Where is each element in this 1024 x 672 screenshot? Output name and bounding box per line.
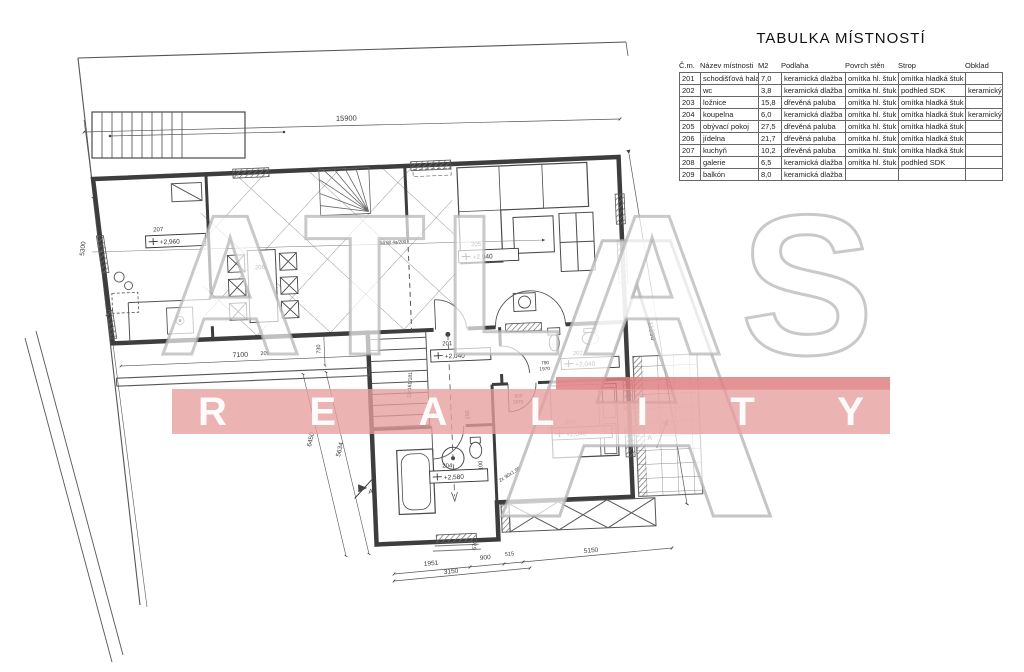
table-cell	[966, 73, 1003, 85]
table-cell: 205	[680, 121, 701, 133]
svg-text:A: A	[368, 489, 373, 496]
rooms-table: 201schodišťová hala7,0keramická dlažbaom…	[679, 72, 1003, 181]
table-cell	[846, 169, 899, 181]
spec-door-bed-w: 800	[514, 393, 523, 399]
table-cell: omítka hladká štuk	[899, 133, 966, 145]
table-cell: keramická dlažba	[782, 73, 846, 85]
table-cell: obývací pokoj	[701, 121, 759, 133]
table-header-cell: Strop	[898, 61, 965, 70]
door-arc-wc	[500, 345, 529, 374]
table-row: 202wc3,8keramická dlažbaomítka hl. štukp…	[680, 85, 1003, 97]
dim-5150: 5150	[584, 547, 599, 555]
table-cell: 8,0	[759, 169, 782, 181]
external-stair	[633, 354, 703, 497]
page: 7100 209 730 150 2100 2x 90x1,90 790 197…	[0, 0, 1024, 672]
table-cell: dřevěná paluba	[782, 121, 846, 133]
dim-900: 900	[480, 554, 492, 562]
table-column-headers: Č.m.Název místnostiM2PodlahaPovrch stěnS…	[679, 61, 1003, 70]
coffee-table	[513, 216, 554, 254]
table-cell	[966, 169, 1003, 181]
table-cell: 209	[680, 169, 701, 181]
svg-text:A: A	[647, 435, 652, 442]
spec-door-wc-w: 790	[541, 360, 550, 366]
table-cell: 21,7	[759, 133, 782, 145]
svg-text:+2,040: +2,040	[575, 361, 596, 369]
bed	[550, 383, 619, 458]
chimney	[171, 183, 202, 202]
table-cell: galerie	[701, 157, 759, 169]
spec-window-bath: 2x 90x1,90	[498, 466, 522, 484]
table-title: TABULKA MÍSTNOSTÍ	[679, 30, 1003, 47]
table-cell: omítka hladká štuk	[899, 73, 966, 85]
table-cell: 6,0	[759, 109, 782, 121]
elev-box-205: +2,940	[458, 248, 518, 263]
table-cell: keramická dlažba	[782, 157, 846, 169]
table-cell: omítka hl. štuk	[846, 85, 899, 97]
balcony-truss	[501, 498, 656, 532]
wc-fixtures	[548, 326, 599, 351]
table-cell: omítka hladká štuk	[899, 109, 966, 121]
table-header-cell: Obklad	[965, 61, 1002, 70]
dim-515: 515	[505, 551, 515, 558]
dim-150: 150	[465, 410, 471, 419]
svg-text:+2,580: +2,580	[444, 474, 465, 482]
table-row: 201schodišťová hala7,0keramická dlažbaom…	[680, 73, 1003, 85]
section-marker-left: A	[354, 480, 374, 499]
table-cell: omítka hladká štuk	[899, 145, 966, 157]
table-cell: keramická dlažba	[782, 169, 846, 181]
table-cell: balkón	[701, 169, 759, 181]
dim-5300: 5300	[79, 241, 88, 256]
dim-7100: 7100	[232, 352, 248, 360]
table-row: 204koupelna6,0keramická dlažbaomítka hl.…	[680, 109, 1003, 121]
table-cell: wc	[701, 85, 759, 97]
room-num-206: 206	[255, 265, 266, 271]
table-cell: omítka hl. štuk	[846, 145, 899, 157]
svg-text:+2,040: +2,040	[566, 431, 587, 439]
table-cell: 3,8	[759, 85, 782, 97]
table-cell: podhled SDK	[899, 85, 966, 97]
table-cell: schodišťová hala	[701, 73, 759, 85]
table-cell: 27,5	[759, 121, 782, 133]
table-header-cell: Č.m.	[679, 61, 700, 70]
table-header-cell: Povrch stěn	[845, 61, 898, 70]
spec-door-wc-h: 1970	[539, 366, 550, 372]
room-num-203: 203	[566, 419, 577, 425]
table-cell: keramická dlažba	[782, 85, 846, 97]
table-cell: keramický	[966, 109, 1003, 121]
dim-5634: 5634	[335, 441, 345, 457]
room-num-201: 201	[442, 341, 453, 347]
table-cell: 206	[680, 133, 701, 145]
kitchen-counter	[111, 268, 213, 343]
dim-11250: 11250	[646, 321, 656, 341]
elev-box-207: +2,960	[145, 233, 205, 248]
bath-toilet	[469, 437, 482, 458]
table-cell: 202	[680, 85, 701, 97]
table-cell: ložnice	[701, 97, 759, 109]
dim-1951: 1951	[424, 560, 439, 568]
svg-text:+2,040: +2,040	[445, 353, 466, 361]
table-cell: omítka hl. štuk	[846, 73, 899, 85]
table-header-cell: M2	[758, 61, 781, 70]
dim-3150: 3150	[444, 568, 459, 576]
table-cell	[966, 145, 1003, 157]
door-arc-bath	[432, 426, 465, 459]
table-cell: 6,5	[759, 157, 782, 169]
armchair	[559, 212, 595, 271]
spec-door-bed-h: 1970	[513, 399, 524, 405]
table-row: 207kuchyň10,2dřevěná palubaomítka hl. št…	[680, 145, 1003, 157]
interior-stair	[370, 332, 430, 429]
room-num-204: 204	[442, 463, 453, 469]
dim-670: 670	[472, 540, 479, 550]
table-cell: podhled SDK	[899, 157, 966, 169]
table-cell	[966, 121, 1003, 133]
table-cell: 203	[680, 97, 701, 109]
table-row: 208galerie6,5keramická dlažbaomítka hl. …	[680, 157, 1003, 169]
dim-15900: 15900	[336, 113, 357, 123]
table-cell: dřevěná paluba	[782, 145, 846, 157]
spec-stair: 11x161/181	[406, 372, 414, 398]
table-cell: omítka hl. štuk	[846, 109, 899, 121]
svg-text:+2,940: +2,940	[473, 253, 494, 261]
table-cell	[966, 97, 1003, 109]
label-209: 209	[260, 351, 269, 357]
table-cell: 207	[680, 145, 701, 157]
table-cell: dřevěná paluba	[782, 97, 846, 109]
table-cell: 201	[680, 73, 701, 85]
table-cell: omítka hl. štuk	[846, 97, 899, 109]
elev-box-202: +2,040	[561, 356, 619, 369]
elev-box-204: +2,580	[430, 469, 488, 483]
building: 7100 209 730 150 2100 2x 90x1,90 790 197…	[93, 150, 705, 565]
table-cell: 7,0	[759, 73, 782, 85]
table-header-cell: Název místnosti	[700, 61, 758, 70]
table-cell: kuchyň	[701, 145, 759, 157]
table-cell	[966, 157, 1003, 169]
elev-box-201: +2,040	[430, 348, 490, 363]
table-cell: 10,2	[759, 145, 782, 157]
room-num-207: 207	[153, 227, 164, 233]
table-cell	[966, 133, 1003, 145]
dim-line-730	[324, 336, 325, 366]
table-row: 209balkón8,0keramická dlažba	[680, 169, 1003, 181]
table-cell: koupelna	[701, 109, 759, 121]
site-boundary	[25, 42, 628, 662]
room-table-block: TABULKA MÍSTNOSTÍ Č.m.Název místnostiM2P…	[679, 30, 1003, 181]
table-header-cell: Podlaha	[781, 61, 845, 70]
table-cell: omítka hl. štuk	[846, 157, 899, 169]
terrace-strip	[116, 368, 369, 387]
table-row: 206jídelna21,7dřevěná palubaomítka hl. š…	[680, 133, 1003, 145]
table-cell: 208	[680, 157, 701, 169]
table-cell: omítka hladká štuk	[899, 121, 966, 133]
table-cell: 204	[680, 109, 701, 121]
dim-730: 730	[316, 344, 322, 353]
room-num-205: 205	[471, 242, 482, 248]
table-cell: omítka hladká štuk	[899, 97, 966, 109]
room-num-202: 202	[573, 351, 584, 357]
table-cell: keramická dlažba	[782, 109, 846, 121]
dim-6450: 6450	[306, 431, 316, 447]
dining-table	[247, 249, 278, 322]
table-row: 203ložnice15,8dřevěná palubaomítka hl. š…	[680, 97, 1003, 109]
bathtub	[397, 449, 436, 514]
table-cell	[899, 169, 966, 181]
table-cell: dřevěná paluba	[782, 133, 846, 145]
table-cell: omítka hl. štuk	[846, 133, 899, 145]
table-row: 205obývací pokoj27,5dřevěná palubaomítka…	[680, 121, 1003, 133]
stove	[513, 293, 536, 312]
table-cell: keramický	[966, 85, 1003, 97]
table-cell: jídelna	[701, 133, 759, 145]
elev-box-203: +2,040	[552, 426, 612, 441]
svg-text:+2,960: +2,960	[160, 238, 181, 246]
table-cell: omítka hl. štuk	[846, 121, 899, 133]
table-cell: 15,8	[759, 97, 782, 109]
